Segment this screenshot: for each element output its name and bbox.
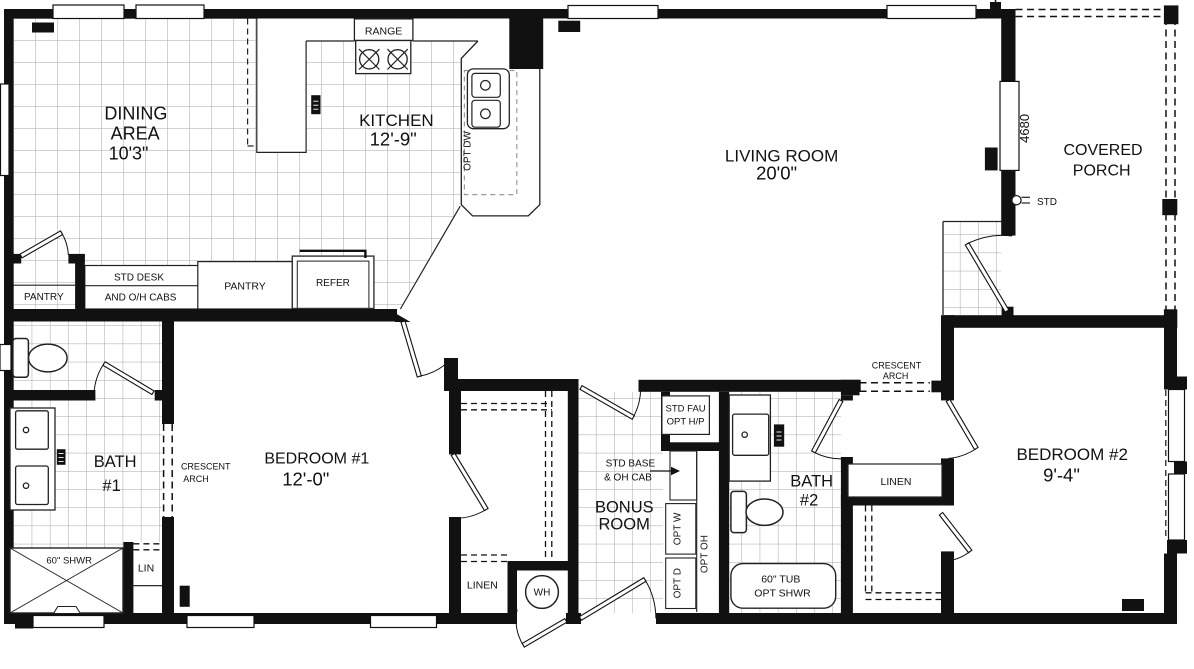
svg-text:ROOM: ROOM (599, 516, 650, 534)
svg-text:20'0": 20'0" (756, 163, 797, 184)
svg-text:STD BASE: STD BASE (606, 459, 656, 470)
svg-text:10'3": 10'3" (109, 144, 149, 164)
svg-text:PANTRY: PANTRY (224, 281, 266, 293)
svg-text:#2: #2 (800, 492, 818, 510)
svg-text:ARCH: ARCH (183, 474, 209, 484)
svg-text:AND O/H CABS: AND O/H CABS (105, 293, 177, 304)
svg-text:PANTRY: PANTRY (24, 292, 64, 303)
svg-text:BATH: BATH (790, 473, 833, 491)
svg-text:WH: WH (534, 588, 551, 599)
svg-text:AREA: AREA (111, 124, 160, 144)
svg-text:COVERED: COVERED (1063, 142, 1142, 159)
svg-text:LIN: LIN (138, 563, 154, 575)
svg-text:4680: 4680 (1017, 114, 1032, 143)
svg-text:BEDROOM #1: BEDROOM #1 (264, 451, 369, 468)
svg-text:#1: #1 (102, 477, 120, 495)
svg-text:LINEN: LINEN (881, 476, 912, 488)
svg-text:CRESCENT: CRESCENT (181, 462, 231, 472)
svg-text:BONUS: BONUS (595, 499, 654, 517)
svg-text:CRESCENT: CRESCENT (872, 361, 922, 371)
svg-text:STD: STD (1037, 197, 1057, 208)
svg-text:REFER: REFER (316, 278, 350, 289)
svg-text:OPT H/P: OPT H/P (667, 417, 705, 428)
svg-text:OPT W: OPT W (673, 512, 684, 545)
svg-text:OPT DW: OPT DW (462, 131, 473, 171)
svg-text:OPT D: OPT D (673, 568, 684, 598)
svg-text:STD DESK: STD DESK (114, 273, 164, 284)
svg-text:12'-0": 12'-0" (282, 469, 329, 490)
svg-text:RANGE: RANGE (365, 26, 402, 38)
svg-text:60" TUB: 60" TUB (761, 574, 800, 586)
svg-text:STD FAU: STD FAU (666, 404, 706, 415)
svg-text:KITCHEN: KITCHEN (359, 111, 434, 130)
svg-text:BATH: BATH (94, 453, 137, 471)
svg-text:& OH CAB: & OH CAB (604, 473, 652, 484)
svg-text:BEDROOM #2: BEDROOM #2 (1016, 445, 1127, 464)
svg-text:OPT SHWR: OPT SHWR (754, 588, 811, 600)
svg-text:LINEN: LINEN (467, 580, 498, 592)
svg-text:ARCH: ARCH (883, 371, 909, 381)
svg-text:12'-9": 12'-9" (370, 129, 417, 150)
svg-text:PORCH: PORCH (1073, 163, 1131, 180)
svg-text:OPT OH: OPT OH (700, 535, 711, 573)
svg-text:DINING: DINING (104, 104, 167, 124)
svg-text:9'-4": 9'-4" (1043, 465, 1080, 486)
svg-text:60" SHWR: 60" SHWR (46, 556, 92, 567)
